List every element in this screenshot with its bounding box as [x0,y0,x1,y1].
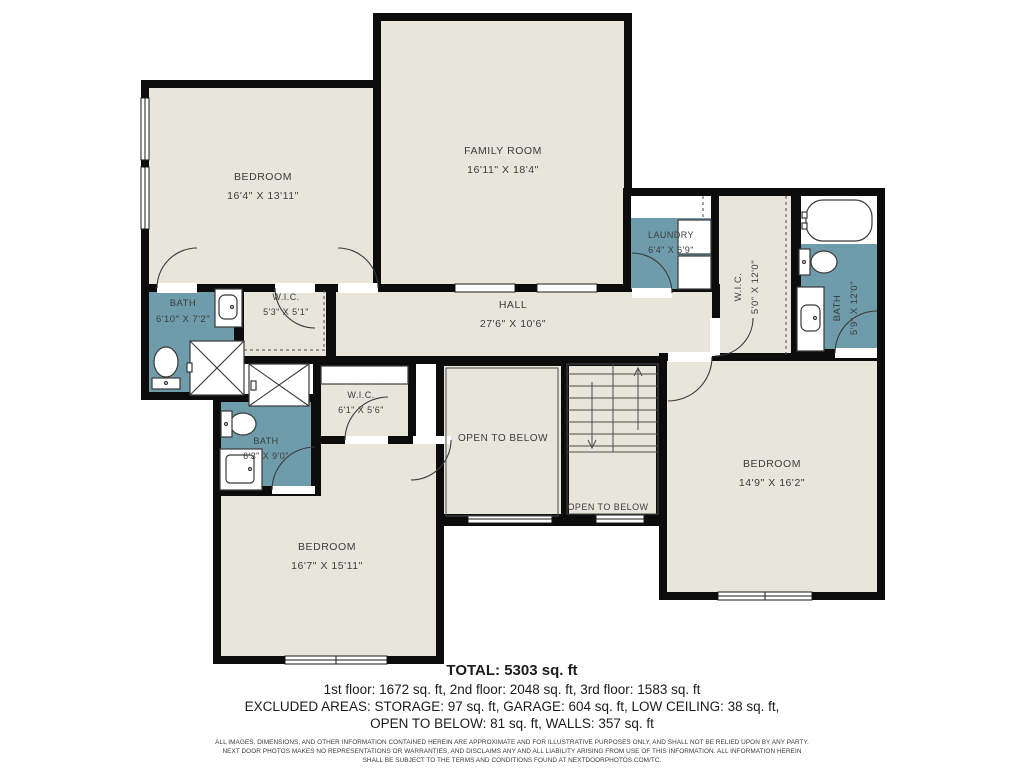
room-label-hall: HALL27'6" X 10'6" [413,296,613,334]
room-label-bath-mid: BATH6'3" X 9'0" [218,434,314,465]
room-label-family: FAMILY ROOM16'11" X 18'4" [403,142,603,180]
wall-opening [537,284,597,292]
excluded-areas-text: EXCLUDED AREAS: STORAGE: 97 sq. ft, GARA… [0,699,1024,714]
disclaimer-line-3: SHALL BE SUBJECT TO THE TERMS AND CONDIT… [0,756,1024,766]
room-label-wic-small: W.I.C.5'3" X 5'1" [240,290,332,321]
total-area-text: TOTAL: 5303 sq. ft [0,662,1024,679]
label-open-to-below-small: OPEN TO BELOW [548,500,668,515]
room-label-bedroom-right: BEDROOM14'9" X 16'2" [672,455,872,493]
sink-vanity [797,287,824,351]
floor-areas-text: 1st floor: 1672 sq. ft, 2nd floor: 2048 … [0,682,1024,697]
room-label-bedroom-bottom: BEDROOM16'7" X 15'11" [227,538,427,576]
excluded-areas-text2: OPEN TO BELOW: 81 sq. ft, WALLS: 357 sq.… [0,716,1024,731]
room-label-wic-right: W.I.C.5'0" X 12'0" [730,212,764,362]
floorplan-page: BEDROOM16'4" X 13'11" FAMILY ROOM16'11" … [0,0,1024,768]
shower [187,341,244,395]
room-label-bath-left: BATH6'10" X 7'2" [133,296,233,328]
room-label-bath-top-right: BATH5'9" X 12'0" [829,233,863,383]
room-label-bedroom-top-left: BEDROOM16'4" X 13'11" [163,168,363,206]
toilet [152,347,180,389]
wall-opening [455,284,515,292]
room-label-laundry: LAUNDRY6'4" X 6'9" [629,228,713,259]
floorplan-drawing [0,0,1024,768]
shower [249,364,309,406]
room-label-wic-mid: W.I.C.6'1" X 5'6" [313,388,409,419]
label-open-to-below: OPEN TO BELOW [428,430,578,448]
